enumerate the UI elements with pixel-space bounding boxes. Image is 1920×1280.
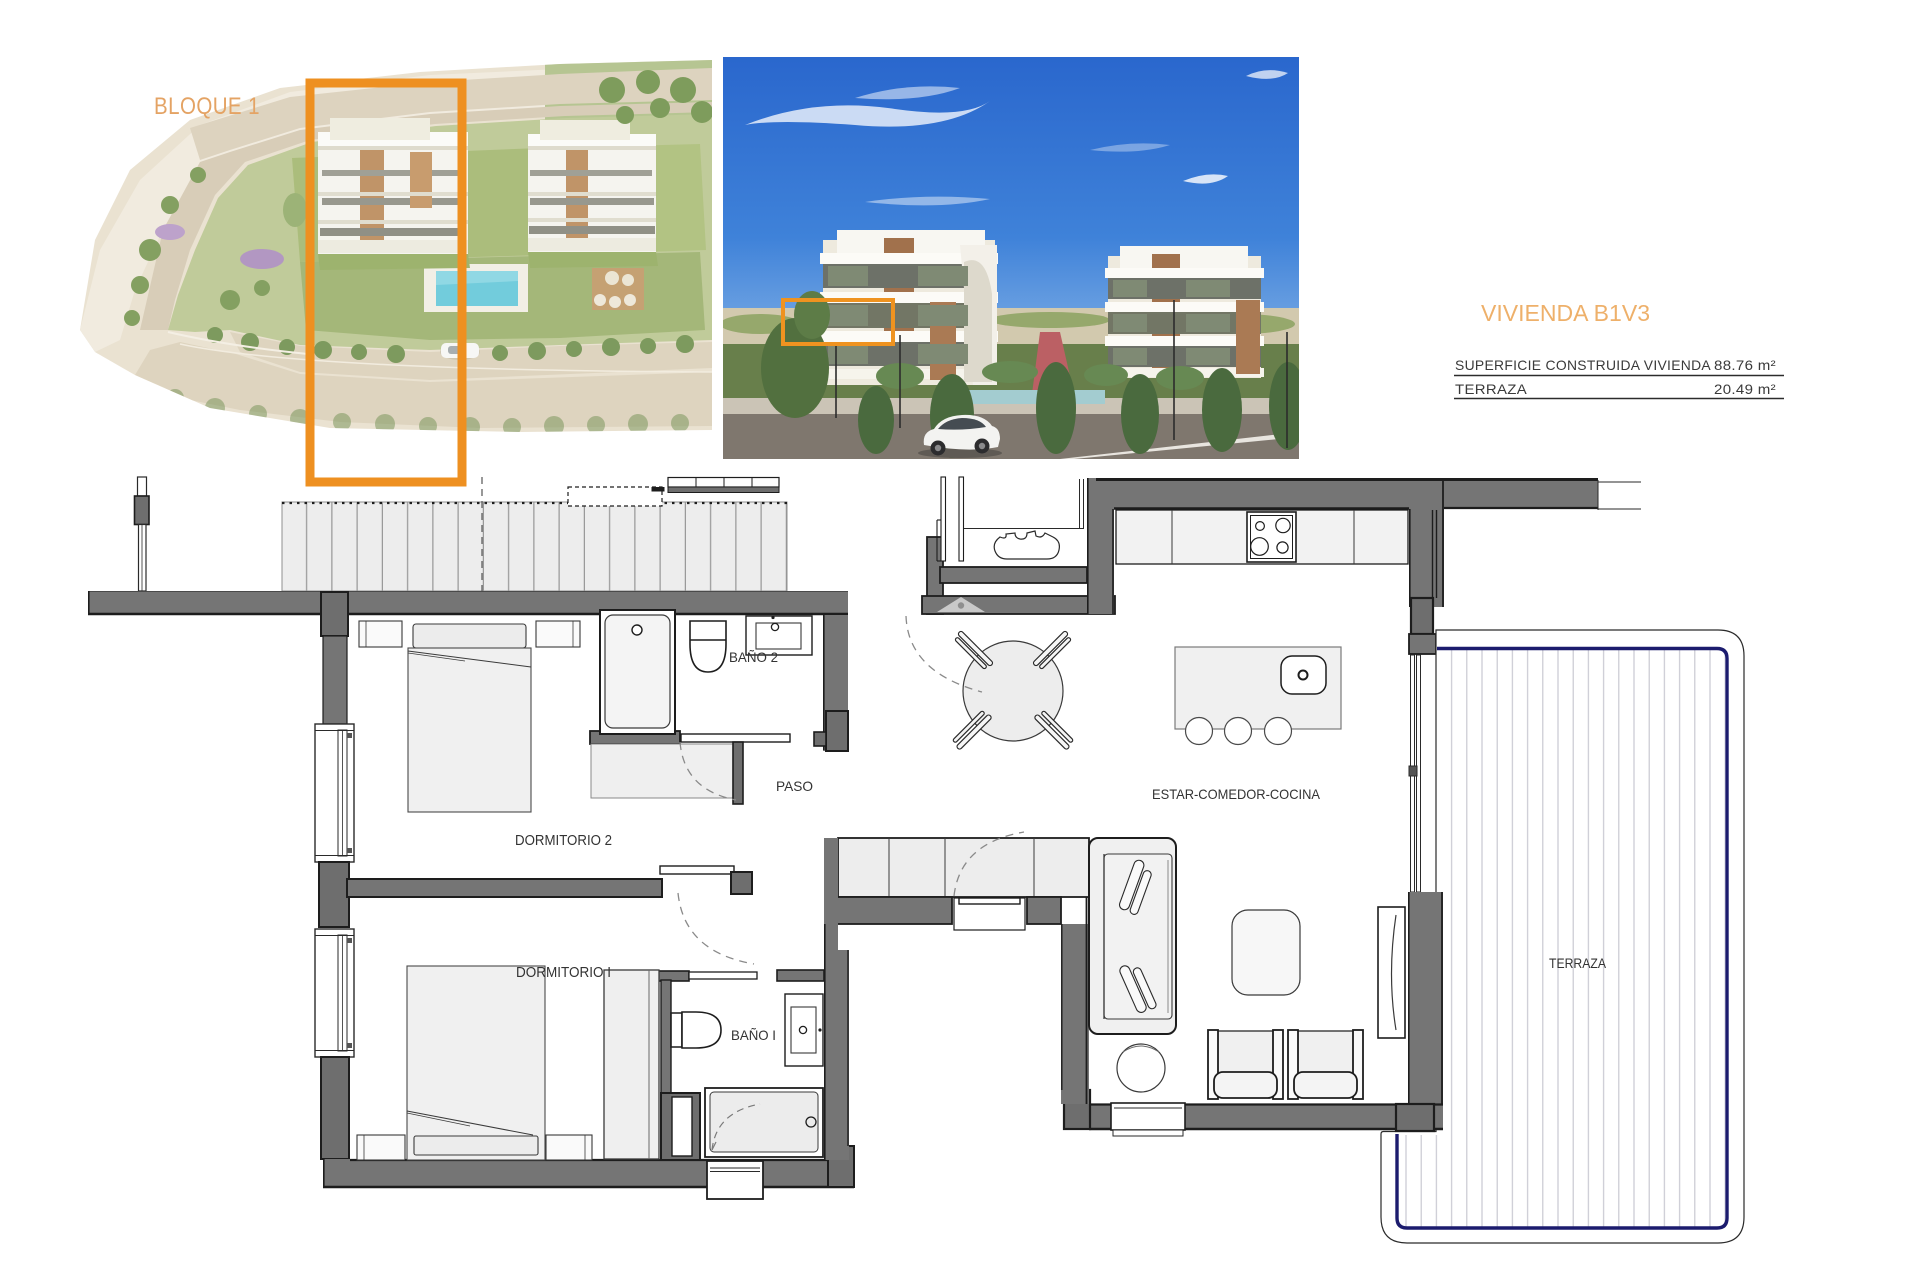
svg-text:ESTAR-COMEDOR-COCINA: ESTAR-COMEDOR-COCINA [1152,786,1321,802]
svg-text:TERRAZA: TERRAZA [1455,381,1527,397]
svg-text:DORMITORIO I: DORMITORIO I [516,964,611,981]
svg-text:PASO: PASO [776,778,813,794]
svg-text:DORMITORIO 2: DORMITORIO 2 [515,832,612,849]
svg-text:BAÑO I: BAÑO I [731,1027,776,1043]
svg-text:BLOQUE 1: BLOQUE 1 [154,93,260,120]
svg-text:20.49 m²: 20.49 m² [1714,381,1776,397]
svg-text:SUPERFICIE CONSTRUIDA VIVIENDA: SUPERFICIE CONSTRUIDA VIVIENDA [1455,357,1711,373]
svg-text:BAÑO 2: BAÑO 2 [729,649,778,665]
svg-text:VIVIENDA B1V3: VIVIENDA B1V3 [1481,300,1650,326]
svg-text:88.76 m²: 88.76 m² [1714,357,1776,373]
svg-text:TERRAZA: TERRAZA [1549,955,1607,971]
